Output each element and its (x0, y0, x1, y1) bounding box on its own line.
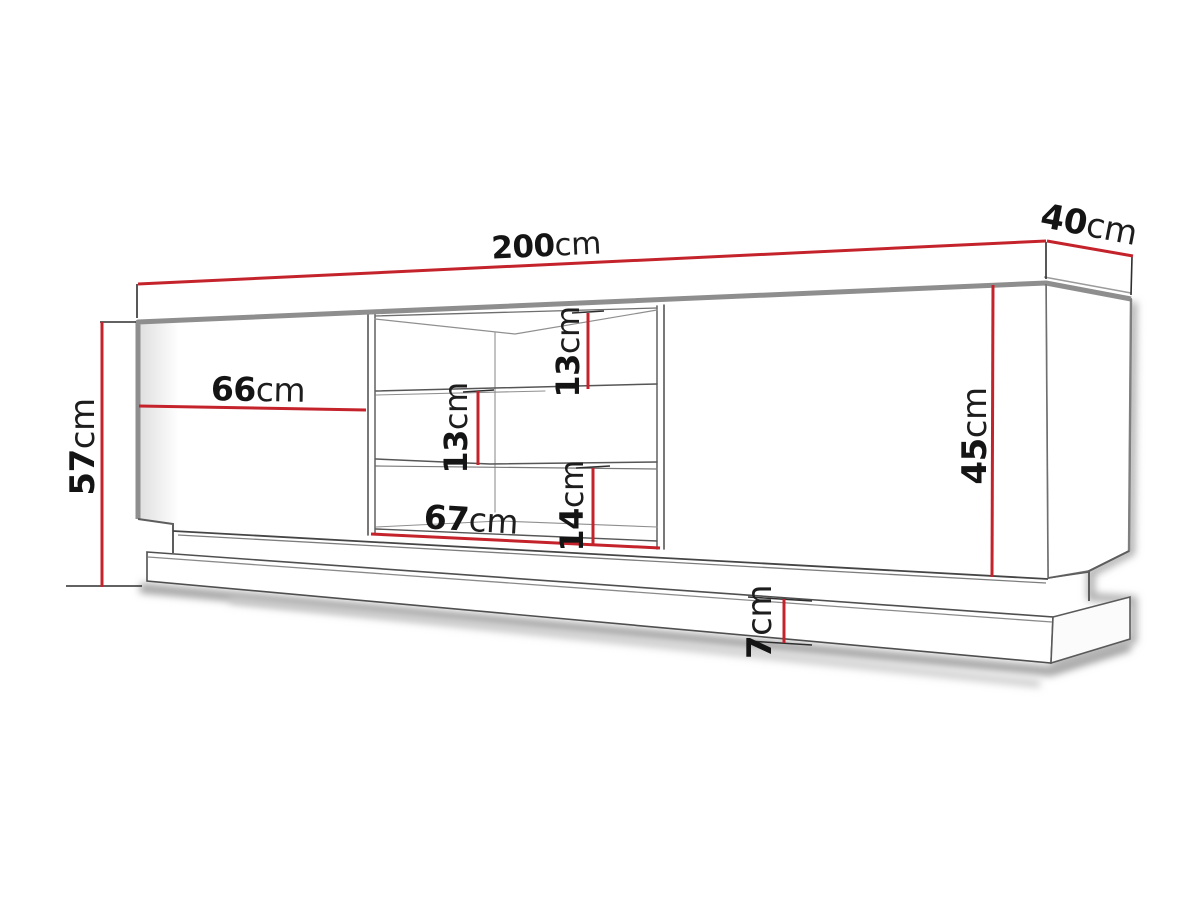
label-total-width: 200cm (491, 225, 602, 266)
label-plinth-height: 7cm (740, 585, 780, 659)
body-right-side-face (1046, 283, 1131, 578)
label-niche-mid-height: 13cm (437, 382, 475, 473)
dimension-diagram-canvas: 200cm 40cm 57cm 66cm 67cm 13cm 13cm 14cm… (0, 0, 1200, 900)
label-depth: 40cm (1037, 196, 1140, 254)
tv-stand-dimension-drawing: 200cm 40cm 57cm 66cm 67cm 13cm 13cm 14cm… (0, 0, 1200, 900)
label-body-height: 45cm (955, 387, 995, 484)
left-end-notch (138, 519, 173, 553)
label-niche-width: 67cm (423, 497, 519, 542)
label-total-height: 57cm (63, 398, 103, 495)
ext-depth-right (1131, 257, 1132, 295)
label-niche-bottom-height: 14cm (553, 460, 591, 551)
label-left-door-width: 66cm (211, 369, 306, 410)
label-niche-top-height: 13cm (549, 306, 587, 397)
